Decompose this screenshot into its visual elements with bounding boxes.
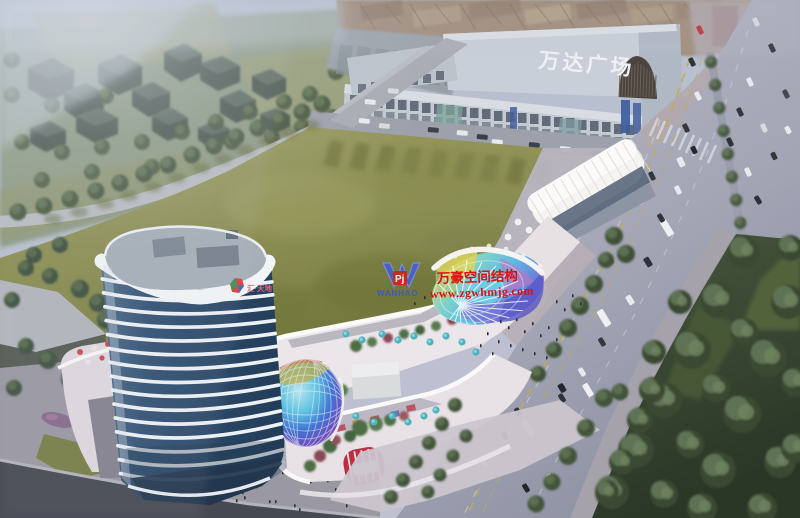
svg-text:WANHAO: WANHAO: [377, 289, 418, 298]
svg-text:万豪空间结构: 万豪空间结构: [436, 267, 519, 286]
svg-text:Pj: Pj: [395, 274, 405, 285]
